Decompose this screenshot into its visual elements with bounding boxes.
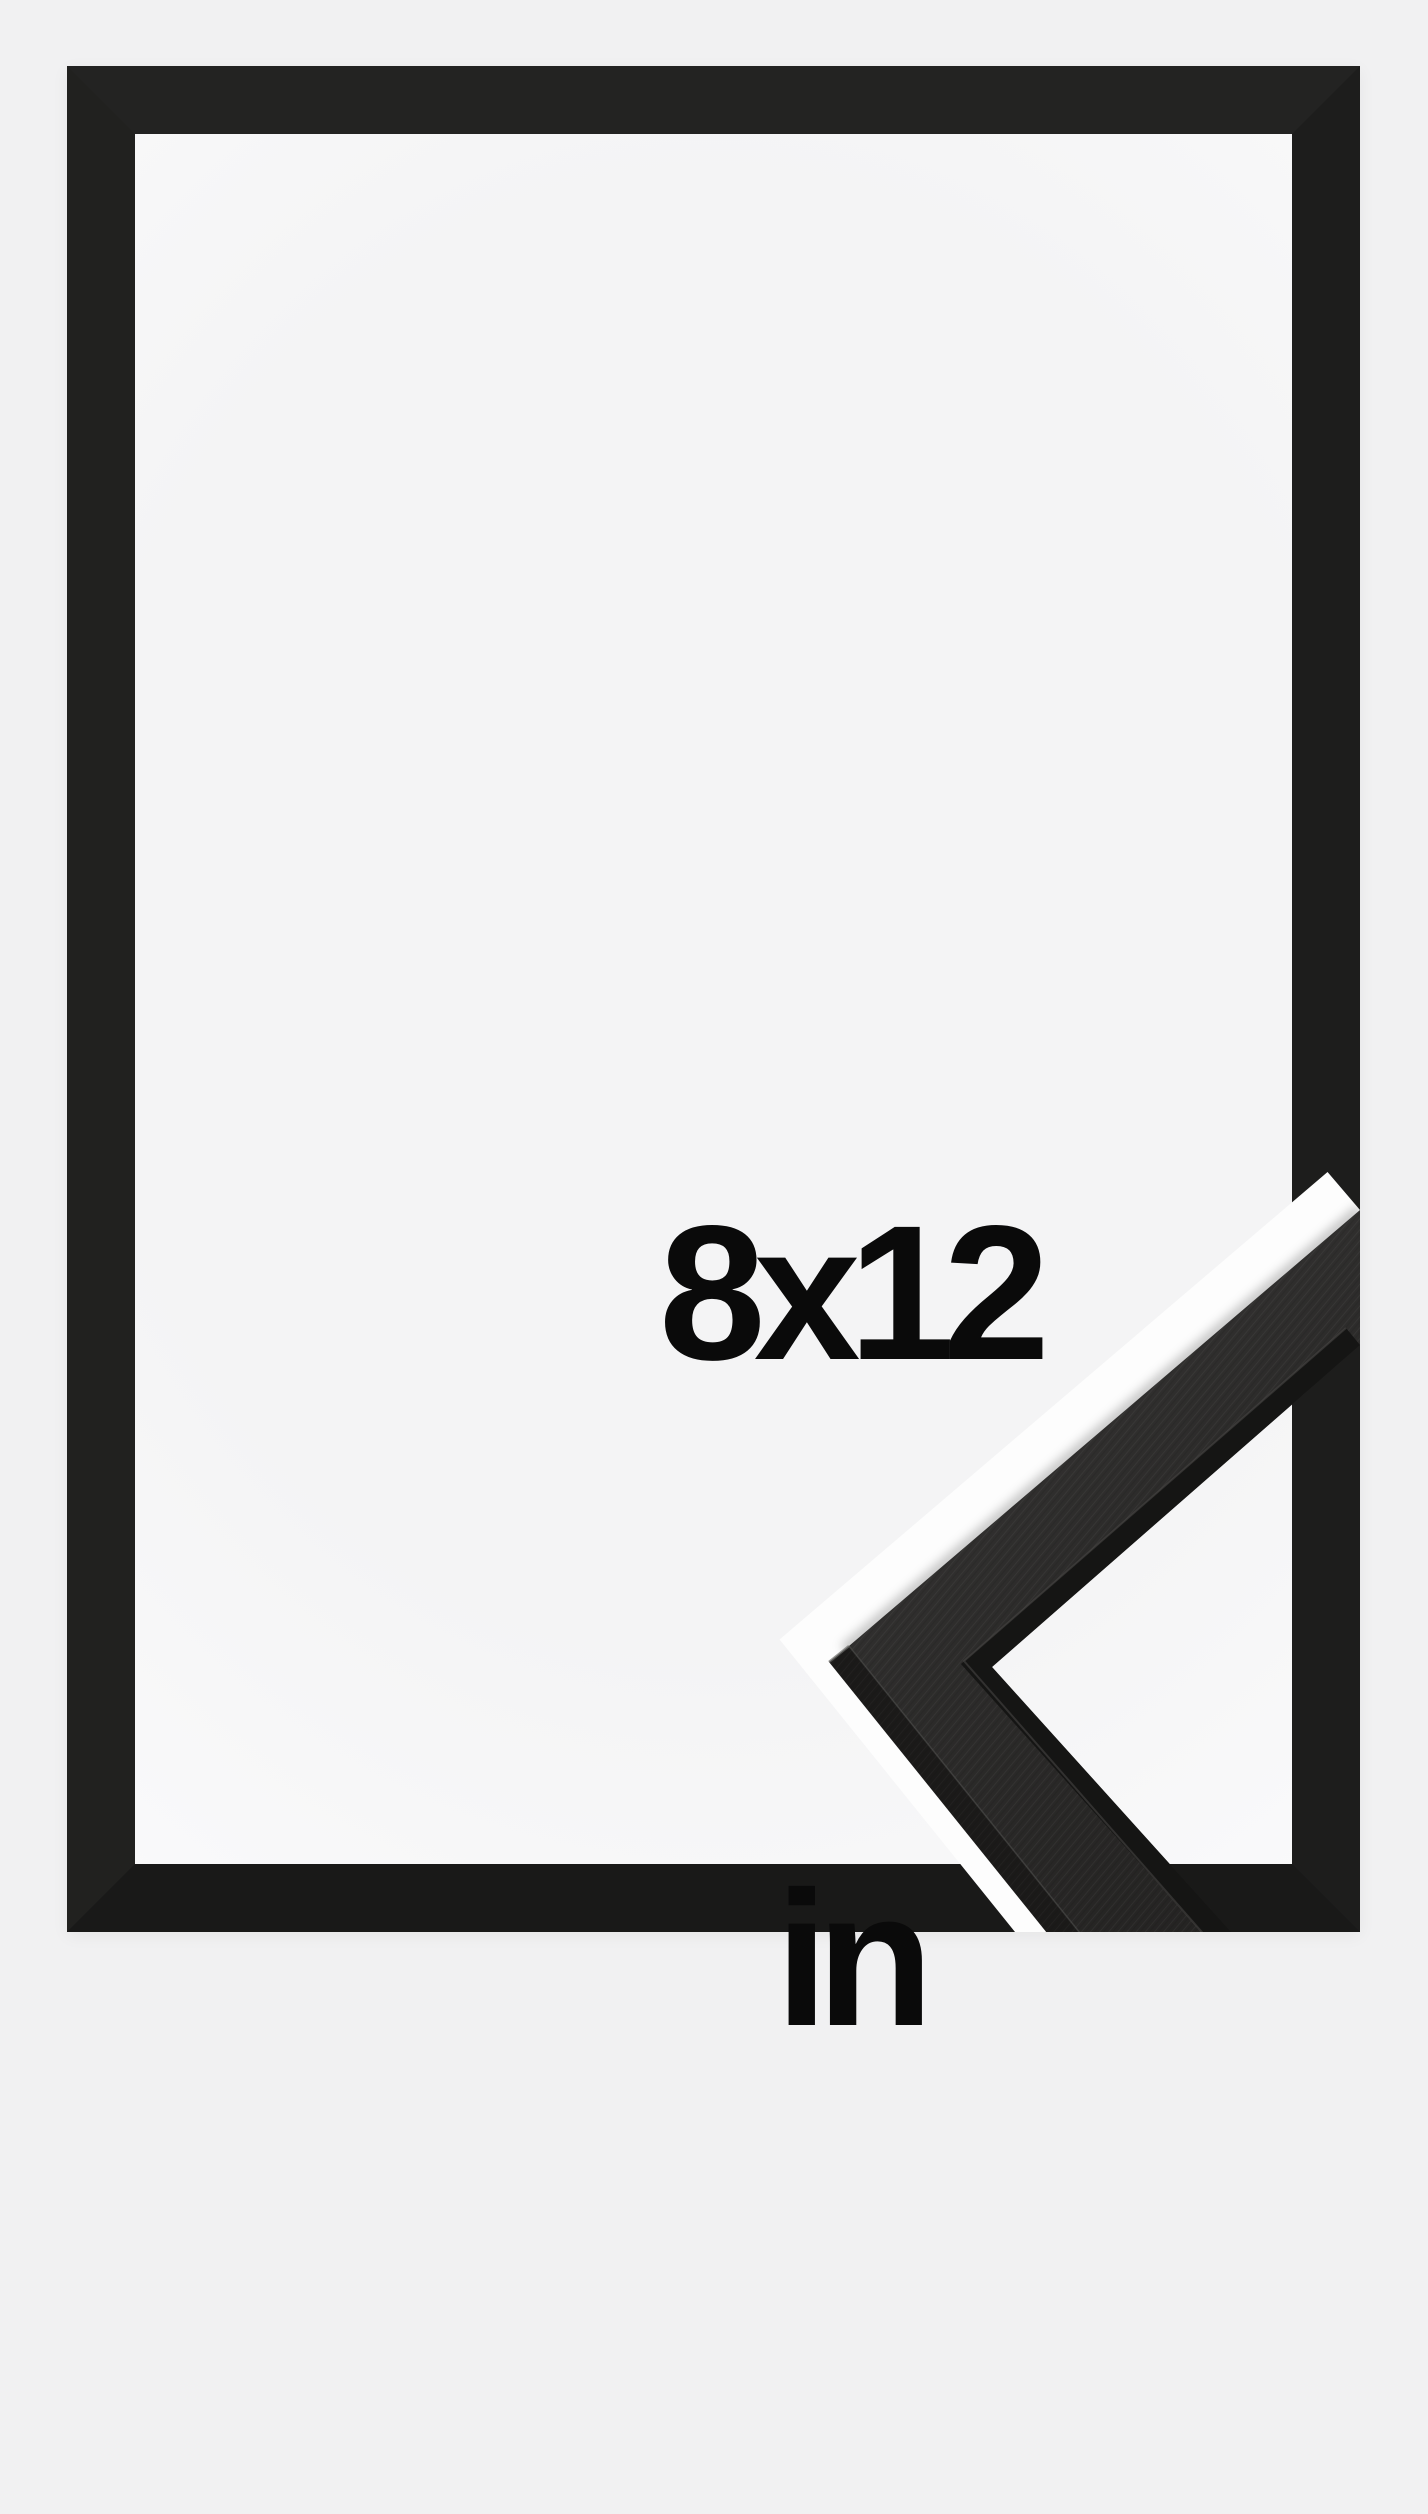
product-image: 8x12 in bbox=[0, 0, 1428, 2000]
corner-detail-inset bbox=[600, 1100, 1360, 1932]
